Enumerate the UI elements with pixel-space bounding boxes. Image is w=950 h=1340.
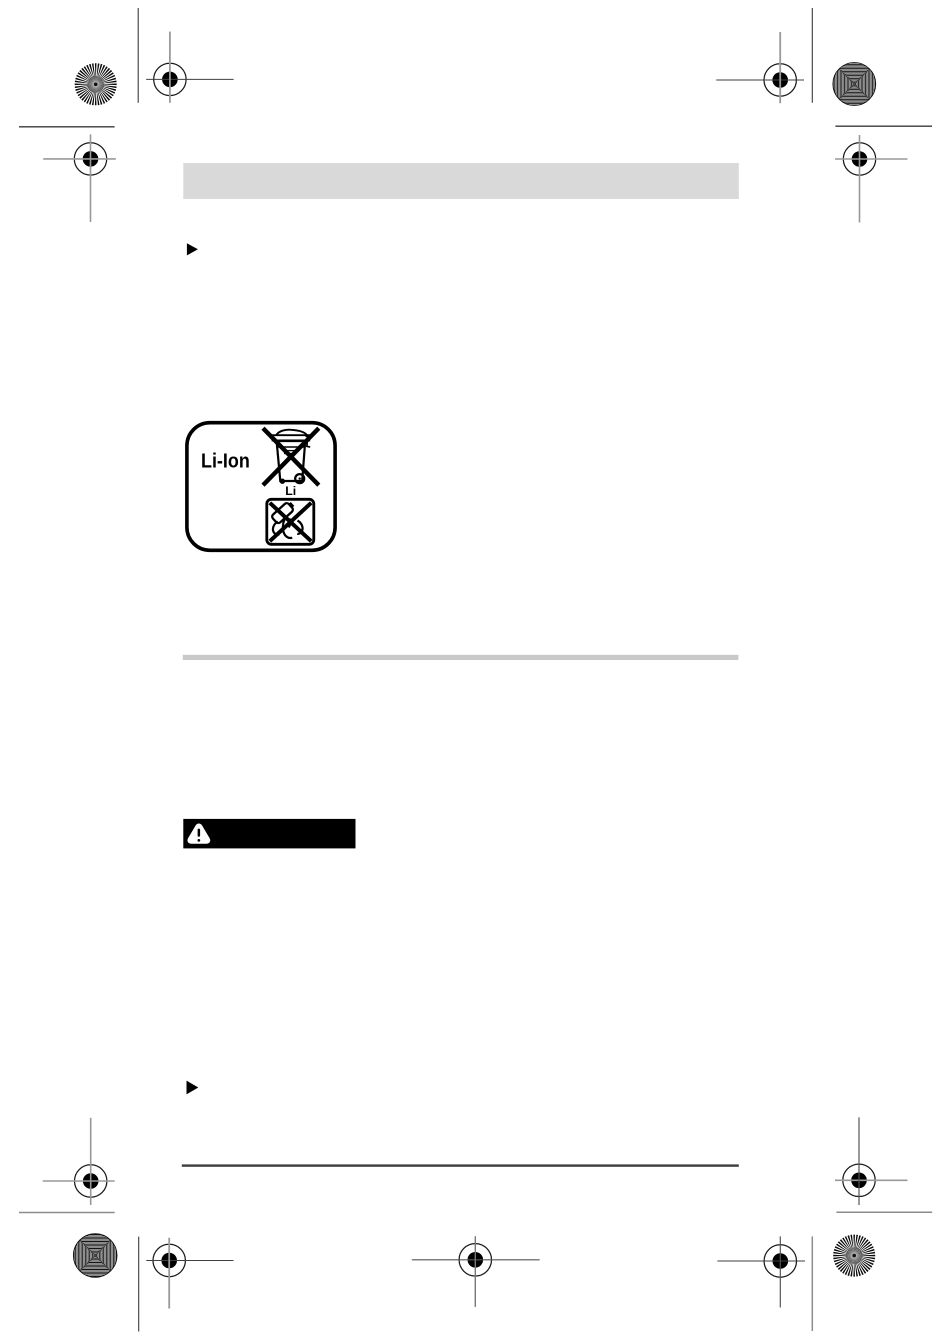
svg-text:Li: Li [285,484,296,498]
svg-text:Li-Ion: Li-Ion [201,449,250,472]
